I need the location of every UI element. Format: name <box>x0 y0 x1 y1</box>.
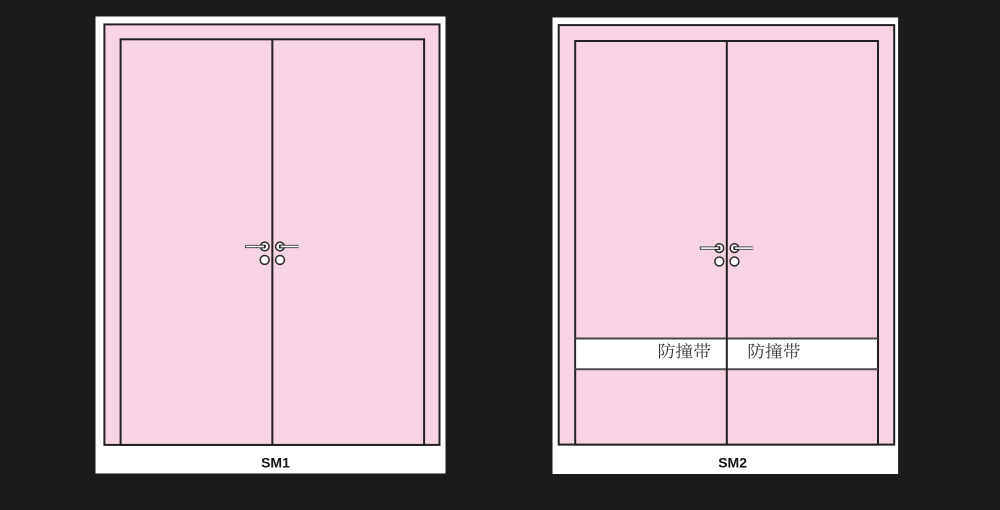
svg-text:SM1: SM1 <box>261 455 290 471</box>
svg-text:SM2: SM2 <box>718 455 747 471</box>
